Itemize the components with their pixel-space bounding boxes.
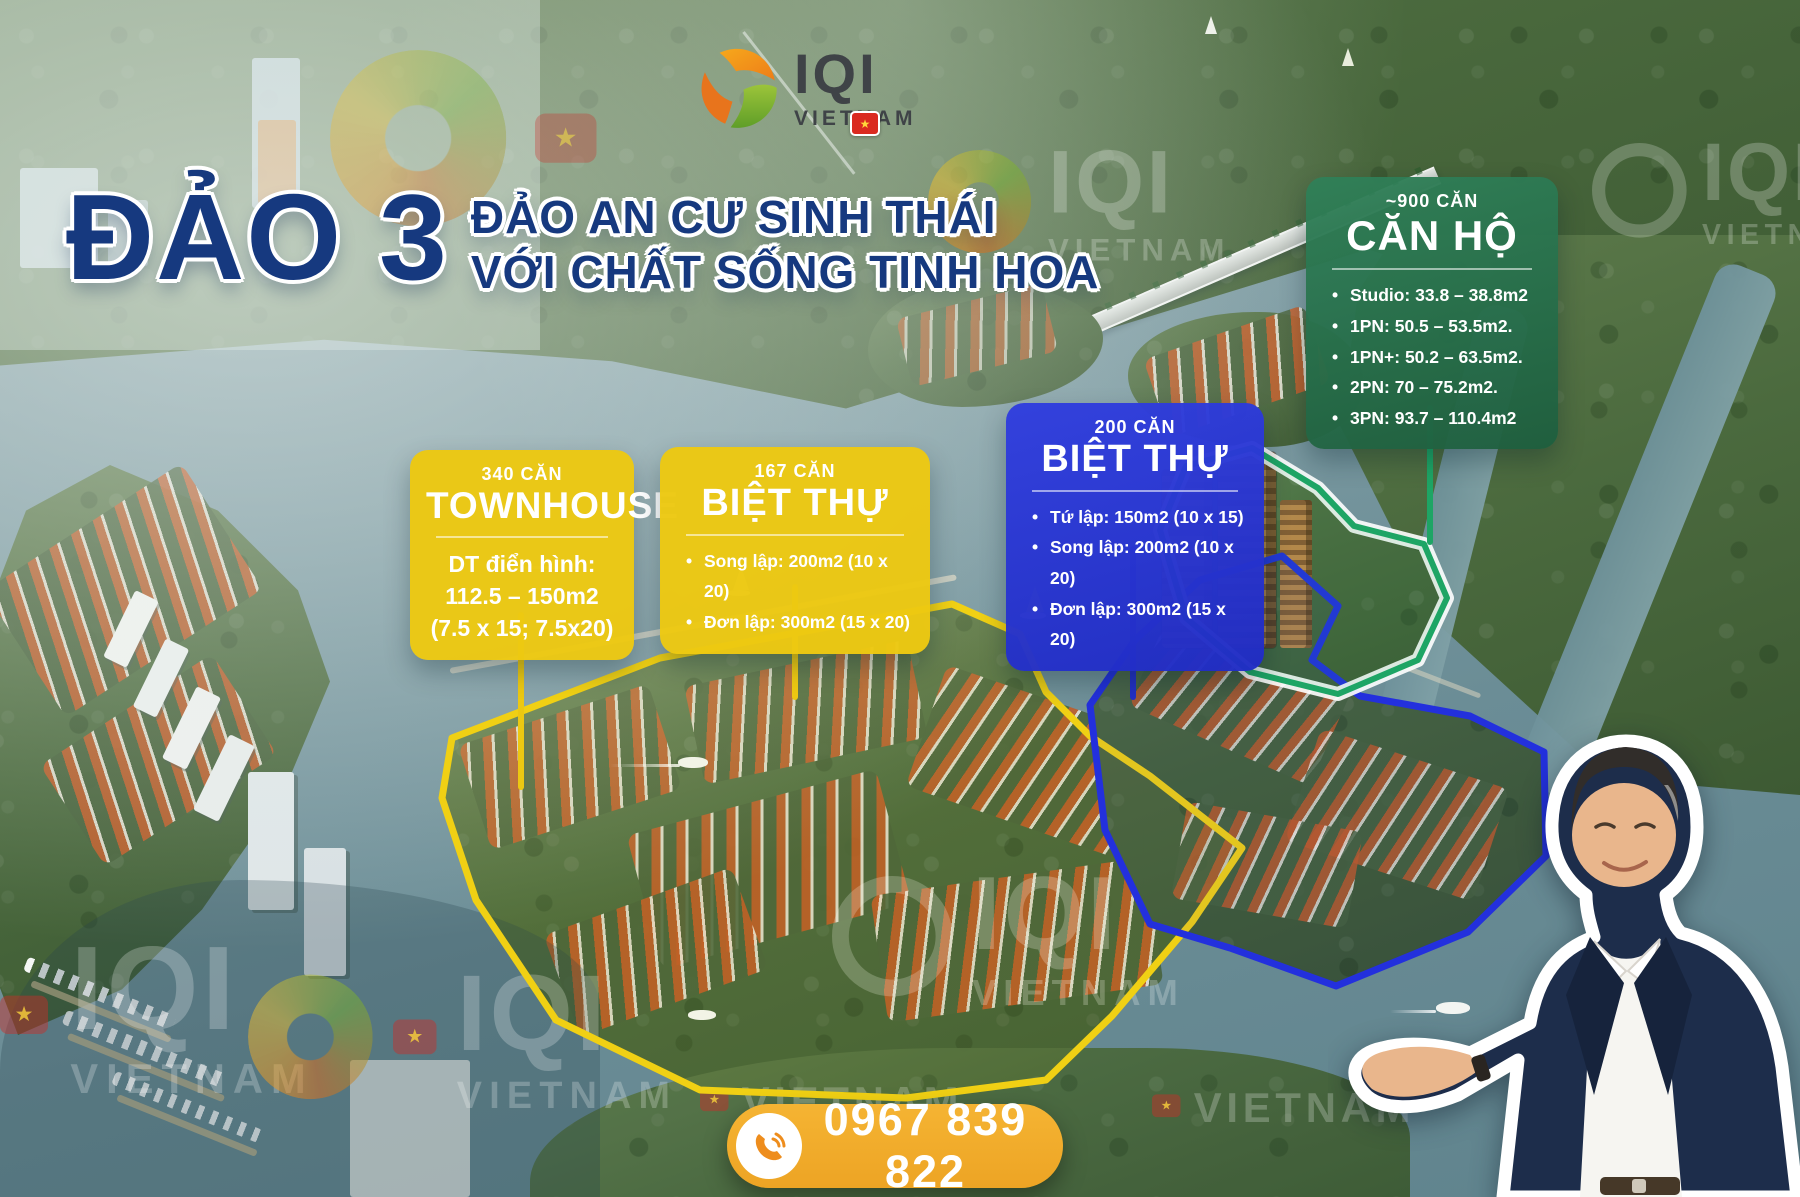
phone-icon-circle [736,1113,802,1179]
divider [1032,490,1238,492]
unit-spec: 1PN: 50.5 – 53.5m2. [1332,311,1542,342]
unit-spec: Đơn lập: 300m2 (15 x 20) [1032,594,1248,655]
villa-blue-info-card: 200 CĂN BIỆT THỰ Tứ lập: 150m2 (10 x 15)… [1006,403,1264,671]
project-name: ĐẢO 3 [66,176,449,298]
iqi-globe-icon [692,40,784,132]
phone-contact-badge[interactable]: 0967 839 822 [727,1104,1063,1188]
boat [688,1010,716,1020]
vietnam-flag-icon: ★ [850,111,880,136]
agent-belt-buckle [1632,1179,1646,1193]
phone-icon [749,1126,789,1166]
subtitle-line1: ĐẢO AN CƯ SINH THÁI [471,190,1100,245]
unit-count: ~900 CĂN [1322,191,1542,212]
unit-spec-list: Tứ lập: 150m2 (10 x 15) Song lập: 200m2 … [1022,502,1248,655]
highrise-tower [1280,500,1312,648]
townhouse-info-card: 340 CĂN TOWNHOUSE DT điển hình: 112.5 – … [410,450,634,660]
unit-spec: (7.5 x 15; 7.5x20) [426,612,618,644]
agent-silhouette [1355,741,1797,1197]
sailboat [1342,48,1354,66]
unit-count: 340 CĂN [426,464,618,485]
unit-spec: Song lập: 200m2 (10 x 20) [1032,532,1248,593]
sailboat [1205,16,1217,34]
unit-spec: 1PN+: 50.2 – 63.5m2. [1332,342,1542,373]
unit-spec: DT điển hình: [426,548,618,580]
unit-spec: Tứ lập: 150m2 (10 x 15) [1032,502,1248,533]
divider [436,536,608,538]
villa-yellow-info-card: 167 CĂN BIỆT THỰ Song lập: 200m2 (10 x 2… [660,447,930,654]
unit-spec-list: Song lập: 200m2 (10 x 20) Đơn lập: 300m2… [676,546,914,638]
logo-brand: IQI [794,46,917,102]
unit-spec: 3PN: 93.7 – 110.4m2 [1332,403,1542,434]
unit-spec: Studio: 33.8 – 38.8m2 [1332,280,1542,311]
water-shade [0,880,600,1197]
unit-spec: Song lập: 200m2 (10 x 20) [686,546,914,607]
unit-spec: 2PN: 70 – 75.2m2. [1332,372,1542,403]
card-title: TOWNHOUSE [426,485,618,528]
divider [686,534,904,536]
boat-wake [610,764,680,767]
boat [678,757,708,768]
card-title: BIỆT THỰ [1022,438,1248,482]
divider [1332,268,1532,270]
iqi-vietnam-logo: IQI VIETNAM ★ [692,40,917,132]
poster-canvas: ★ IQIVIETNAM ★ IQIVIETNAM ★ IQIVIETNAM I… [0,0,1800,1197]
unit-spec-list: Studio: 33.8 – 38.8m2 1PN: 50.5 – 53.5m2… [1322,280,1542,433]
subtitle-line2: VỚI CHẤT SỐNG TINH HOA [471,245,1100,300]
card-title: CĂN HỘ [1322,212,1542,260]
apartment-info-card: ~900 CĂN CĂN HỘ Studio: 33.8 – 38.8m2 1P… [1306,177,1558,449]
phone-number[interactable]: 0967 839 822 [802,1094,1063,1197]
headline-subtitle: ĐẢO AN CƯ SINH THÁI VỚI CHẤT SỐNG TINH H… [471,190,1100,300]
headline: ĐẢO 3 ĐẢO AN CƯ SINH THÁI VỚI CHẤT SỐNG … [66,176,1099,300]
agent-photo [1328,665,1800,1197]
unit-spec: 112.5 – 150m2 [426,580,618,612]
unit-count: 167 CĂN [676,461,914,482]
unit-spec: Đơn lập: 300m2 (15 x 20) [686,607,914,638]
unit-count: 200 CĂN [1022,417,1248,438]
card-title: BIỆT THỰ [676,482,914,526]
